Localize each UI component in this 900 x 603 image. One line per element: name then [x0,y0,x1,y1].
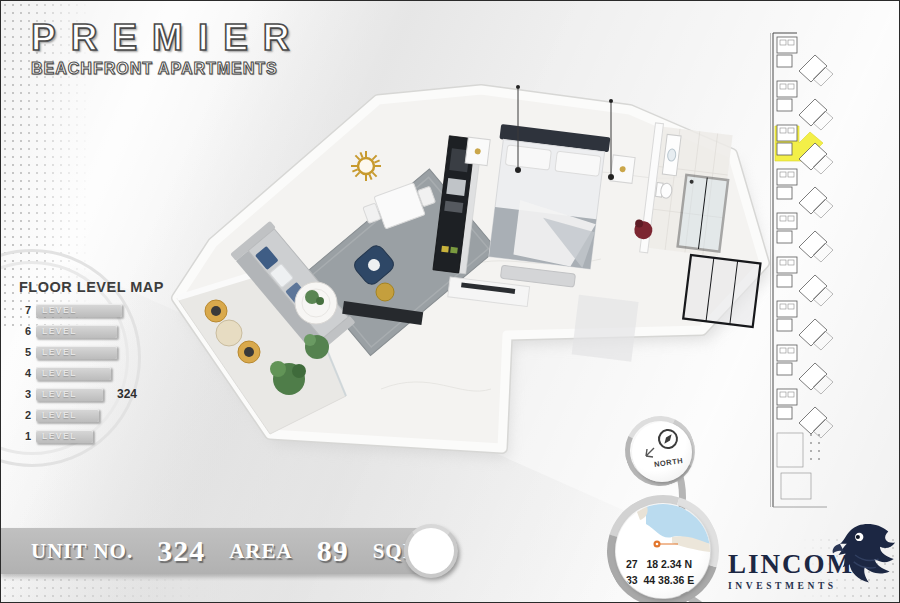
balcony-table [216,320,242,346]
level-bar-1[interactable]: LEVEL [36,430,93,443]
coffee-table [295,282,337,324]
level-bar-5[interactable]: LEVEL [36,346,117,359]
eagle-logo-icon [827,519,897,595]
level-number: 3 [19,388,31,400]
level-row-3: 3 LEVEL 324 [19,387,149,401]
level-bar-3[interactable]: LEVEL [36,388,103,401]
level-number: 2 [19,409,31,421]
longitude: 33 44 38.36 E [626,574,694,586]
marketing-sheet: PREMIER BEACHFRONT APARTMENTS FLOOR LEVE… [0,0,900,603]
sunburst-mirror [351,151,381,181]
level-bar-label: LEVEL [42,389,77,399]
level-row-7: 7 LEVEL [19,303,149,317]
level-row-2: 2 LEVEL [19,408,149,422]
location-map-medallion: 27 18 2.34 N 33 44 38.36 E [616,504,710,598]
unit-label: UNIT NO. [31,539,133,564]
banner-circle-button[interactable] [404,524,458,578]
compass-icon [632,422,692,482]
level-bar-2[interactable]: LEVEL [36,409,99,422]
halftone-dots-bottom-left [1,576,211,602]
brand-title: PREMIER [31,17,305,59]
level-bar-7[interactable]: LEVEL [36,304,122,317]
building-key-plan [769,29,849,539]
level-row-5: 5 LEVEL [19,345,149,359]
unit-number: 324 [157,534,205,568]
bed [485,124,610,269]
terrace-railing [683,255,760,327]
level-number: 1 [19,430,31,442]
level-bar-label: LEVEL [42,410,77,420]
level-number: 5 [19,346,31,358]
coordinates: 27 18 2.34 N 33 44 38.36 E [626,556,694,589]
entry-corridor [572,295,639,362]
gold-side-table [376,283,394,301]
level-number: 4 [19,367,31,379]
level-bar-label: LEVEL [42,368,77,378]
level-row-4: 4 LEVEL [19,366,149,380]
area-label: AREA [229,539,293,564]
unit-info-banner: UNIT NO. 324 AREA 89 SQM [1,528,458,574]
north-arrow-icon [646,448,654,457]
area-value: 89 [317,534,349,568]
latitude: 27 18 2.34 N [626,558,692,570]
oven [446,178,466,196]
floor-level-map: FLOOR LEVEL MAP 7 LEVEL 6 LEVEL 5 LEVEL … [19,279,149,450]
level-bar-label: LEVEL [42,347,77,357]
level-bar-label: LEVEL [42,326,77,336]
level-number: 7 [19,304,31,316]
floor-level-map-heading: FLOOR LEVEL MAP [19,279,149,295]
level-number: 6 [19,325,31,337]
level-row-6: 6 LEVEL [19,324,149,338]
level-bar-label: LEVEL [42,305,77,315]
level-bar-label: LEVEL [42,431,77,441]
compass-medallion: NORTH [632,422,692,482]
level-row-1: 1 LEVEL [19,429,149,443]
level-bar-4[interactable]: LEVEL [36,367,111,380]
level-bar-6[interactable]: LEVEL [36,325,117,338]
tower-base [773,433,827,507]
